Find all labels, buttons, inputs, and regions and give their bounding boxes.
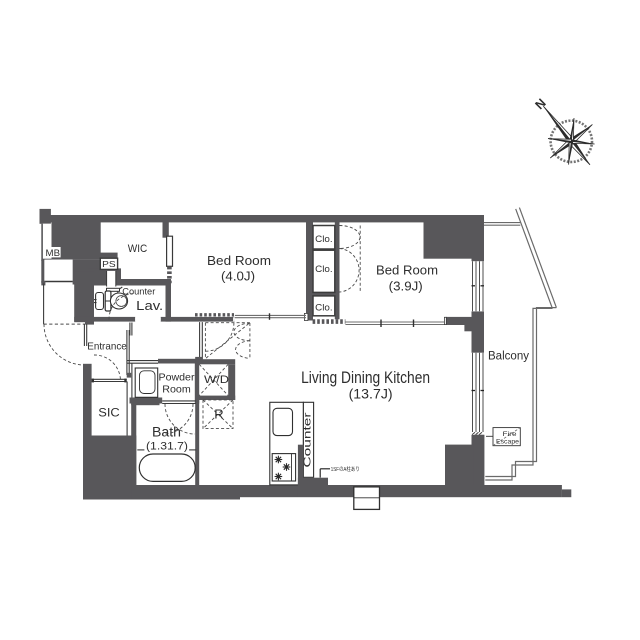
svg-text:Entrance: Entrance <box>87 340 127 352</box>
svg-text:Clo.: Clo. <box>315 234 333 245</box>
svg-text:(13.7J): (13.7J) <box>349 386 393 402</box>
svg-text:Room: Room <box>162 383 191 395</box>
svg-text:Escape: Escape <box>496 440 520 446</box>
svg-text:Bed Room: Bed Room <box>207 253 271 268</box>
svg-text:Clo.: Clo. <box>315 264 333 275</box>
svg-text:(1.31.7): (1.31.7) <box>146 440 188 452</box>
svg-text:Bath: Bath <box>152 424 181 439</box>
svg-text:Powder: Powder <box>159 372 196 384</box>
svg-text:PS: PS <box>102 259 116 269</box>
svg-text:WIC: WIC <box>128 243 148 255</box>
svg-text:Lav.: Lav. <box>136 298 163 313</box>
svg-text:Living Dining Kitchen: Living Dining Kitchen <box>301 369 430 387</box>
svg-text:Clo.: Clo. <box>315 302 333 313</box>
svg-text:1SFのA柱あり: 1SFのA柱あり <box>331 465 360 473</box>
svg-text:SIC: SIC <box>98 405 120 419</box>
svg-text:W/D: W/D <box>204 374 229 386</box>
svg-text:Counter: Counter <box>303 411 314 467</box>
svg-text:(3.9J): (3.9J) <box>389 280 423 294</box>
svg-text:Fire: Fire <box>503 432 518 438</box>
svg-text:MB: MB <box>46 248 61 259</box>
svg-text:Counter: Counter <box>122 286 155 297</box>
svg-text:Balcony: Balcony <box>488 350 529 362</box>
svg-text:Bed Room: Bed Room <box>376 262 438 277</box>
svg-text:R: R <box>214 407 223 422</box>
svg-text:(4.0J): (4.0J) <box>221 270 255 284</box>
